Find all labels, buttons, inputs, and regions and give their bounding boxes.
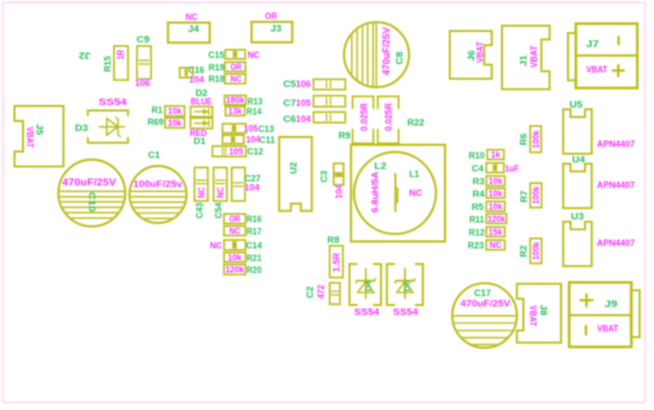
svg-text:R19: R19	[209, 63, 225, 73]
svg-text:120k: 120k	[487, 214, 506, 224]
svg-text:104: 104	[334, 185, 344, 199]
svg-text:104: 104	[245, 183, 260, 193]
svg-text:104: 104	[246, 135, 260, 145]
svg-text:NC: NC	[229, 226, 240, 236]
svg-text:J4: J4	[188, 24, 200, 34]
svg-text:VBAT: VBAT	[586, 65, 607, 75]
svg-text:R12: R12	[469, 228, 485, 238]
svg-text:C14: C14	[246, 240, 263, 250]
svg-text:15k: 15k	[489, 227, 504, 237]
svg-text:472: 472	[316, 285, 326, 299]
svg-text:C6: C6	[283, 114, 296, 124]
svg-text:SS54: SS54	[393, 307, 419, 318]
svg-text:NC: NC	[248, 50, 260, 60]
svg-text:R15: R15	[102, 56, 112, 72]
svg-text:R8: R8	[327, 235, 339, 245]
svg-text:NC: NC	[231, 74, 242, 84]
svg-text:APN4407: APN4407	[597, 179, 635, 190]
svg-text:104: 104	[189, 75, 204, 85]
svg-text:100uF/25v: 100uF/25v	[133, 178, 183, 189]
svg-text:470uF/25V: 470uF/25V	[460, 298, 511, 309]
svg-text:R7: R7	[519, 191, 529, 203]
svg-text:R18: R18	[209, 74, 225, 84]
svg-text:J2: J2	[79, 50, 91, 60]
svg-text:105: 105	[229, 147, 243, 157]
svg-text:OR: OR	[229, 214, 240, 224]
svg-text:C5: C5	[283, 79, 296, 89]
svg-text:R13: R13	[248, 96, 263, 106]
svg-text:J3: J3	[271, 24, 282, 34]
svg-text:R3: R3	[473, 177, 485, 187]
svg-text:106: 106	[296, 79, 311, 89]
svg-text:6.8uH/5A: 6.8uH/5A	[370, 171, 380, 212]
svg-text:NC: NC	[196, 187, 206, 198]
svg-text:R16: R16	[247, 214, 262, 224]
svg-text:C13: C13	[258, 124, 274, 134]
svg-text:APN4407: APN4407	[597, 138, 635, 149]
svg-text:U4: U4	[572, 154, 586, 164]
svg-text:NC: NC	[186, 12, 198, 22]
svg-text:L2: L2	[374, 161, 386, 171]
svg-text:C43: C43	[194, 203, 204, 219]
svg-text:J5: J5	[35, 124, 45, 135]
svg-text:J7: J7	[586, 39, 599, 49]
svg-text:0.025R: 0.025R	[383, 103, 393, 131]
svg-text:10k: 10k	[168, 118, 183, 128]
svg-text:10k: 10k	[168, 106, 183, 116]
svg-text:C3: C3	[319, 171, 329, 183]
svg-text:VBAT: VBAT	[529, 45, 539, 67]
svg-text:C16: C16	[188, 65, 204, 75]
svg-text:D3: D3	[75, 123, 88, 133]
svg-text:R10: R10	[469, 150, 485, 160]
svg-text:U2: U2	[289, 162, 299, 174]
svg-text:1k: 1k	[491, 150, 501, 160]
svg-text:C11: C11	[259, 135, 275, 145]
svg-text:VBAT: VBAT	[597, 324, 618, 334]
svg-text:R23: R23	[468, 241, 484, 251]
svg-text:BLUE: BLUE	[191, 97, 212, 107]
svg-text:APN4407: APN4407	[597, 237, 635, 248]
svg-text:R17: R17	[247, 226, 262, 236]
svg-text:J1: J1	[518, 55, 528, 66]
svg-text:C10: C10	[87, 192, 97, 212]
svg-text:R21: R21	[247, 253, 262, 263]
svg-text:C2: C2	[305, 286, 315, 298]
svg-text:0.025R: 0.025R	[359, 103, 369, 131]
svg-text:VBAT: VBAT	[528, 305, 538, 326]
svg-text:OR: OR	[265, 11, 277, 21]
svg-text:D5: D5	[403, 280, 412, 291]
svg-text:J9: J9	[604, 299, 617, 309]
svg-text:D1: D1	[194, 136, 206, 146]
svg-text:R22: R22	[407, 117, 424, 127]
svg-text:1uF: 1uF	[505, 163, 519, 173]
svg-text:104: 104	[296, 114, 311, 124]
svg-text:470uF/25V: 470uF/25V	[382, 27, 393, 75]
svg-text:R1: R1	[152, 105, 163, 115]
svg-text:100k: 100k	[531, 185, 541, 204]
svg-text:R6: R6	[518, 133, 528, 145]
svg-text:C9: C9	[137, 34, 150, 44]
svg-text:R5: R5	[472, 202, 484, 212]
svg-text:10k: 10k	[489, 202, 504, 212]
svg-text:NC: NC	[409, 188, 422, 198]
svg-text:OR: OR	[231, 62, 242, 72]
svg-text:R11: R11	[469, 214, 484, 224]
svg-text:L1: L1	[409, 169, 419, 179]
svg-text:105: 105	[244, 124, 258, 134]
svg-text:R20: R20	[247, 265, 262, 275]
svg-text:100k: 100k	[531, 129, 541, 148]
svg-text:SS54: SS54	[99, 97, 128, 108]
svg-text:VBAT: VBAT	[475, 41, 485, 62]
svg-text:U3: U3	[571, 212, 584, 222]
svg-text:120k: 120k	[225, 265, 245, 275]
svg-text:13k: 13k	[228, 106, 243, 116]
svg-text:C4: C4	[472, 163, 485, 173]
svg-text:106: 106	[135, 78, 150, 88]
svg-text:C15: C15	[208, 50, 224, 60]
svg-text:R2: R2	[518, 245, 528, 257]
svg-text:C8: C8	[395, 52, 405, 65]
svg-text:C7: C7	[283, 98, 296, 108]
svg-text:100k: 100k	[531, 241, 541, 260]
svg-text:C54: C54	[213, 202, 223, 219]
svg-text:NC: NC	[490, 240, 502, 250]
svg-text:10k: 10k	[228, 252, 243, 262]
svg-text:1R: 1R	[116, 49, 126, 59]
svg-text:NC: NC	[210, 240, 222, 250]
svg-text:180k: 180k	[226, 95, 246, 105]
svg-text:R4: R4	[473, 189, 486, 199]
svg-text:R9: R9	[339, 130, 351, 140]
svg-text:R14: R14	[247, 107, 263, 117]
svg-text:VBAT: VBAT	[25, 127, 35, 148]
svg-text:C1: C1	[148, 150, 160, 160]
svg-text:10k: 10k	[489, 188, 504, 198]
svg-text:NC: NC	[215, 187, 225, 198]
svg-text:1.5R: 1.5R	[331, 253, 341, 272]
svg-text:10k: 10k	[489, 176, 504, 186]
svg-text:470uF/25V: 470uF/25V	[62, 177, 117, 188]
svg-text:U5: U5	[569, 99, 582, 109]
svg-text:J8: J8	[539, 305, 549, 316]
svg-text:C12: C12	[247, 147, 263, 157]
svg-text:105: 105	[296, 98, 311, 108]
svg-text:D4: D4	[364, 280, 373, 291]
svg-text:SS54: SS54	[354, 307, 380, 318]
svg-text:R69: R69	[148, 117, 164, 127]
